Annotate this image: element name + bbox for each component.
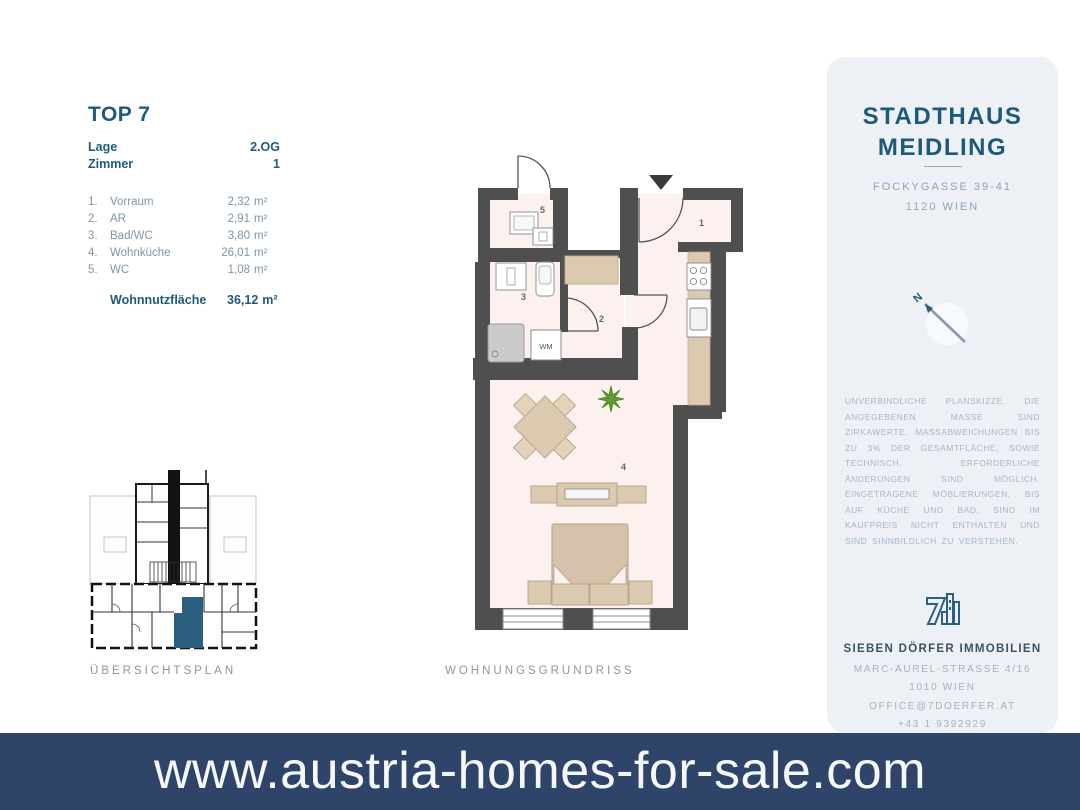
project-address-line2: 1120 WIEN <box>827 197 1058 217</box>
washing-machine-icon: WM <box>531 330 561 360</box>
stove-icon <box>687 263 711 290</box>
room-unit: m² <box>250 228 272 245</box>
room-name: AR <box>110 211 198 228</box>
shower-icon <box>488 324 524 362</box>
total-area: 36,12 <box>206 293 258 307</box>
room-row: 3. Bad/WC 3,80 m² <box>88 228 272 245</box>
room-row: 2. AR 2,91 m² <box>88 211 272 228</box>
overview-plan-caption: ÜBERSICHTSPLAN <box>90 665 236 677</box>
room-area: 26,01 <box>198 245 250 262</box>
room-row: 4. Wohnküche 26,01 m² <box>88 245 272 262</box>
title-divider <box>924 166 962 167</box>
company-address-line1: MARC-AUREL-STRASSE 4/16 <box>827 661 1058 679</box>
bath-toilet-icon <box>496 263 526 290</box>
room-area: 1,08 <box>198 262 250 279</box>
dining-set <box>513 393 576 459</box>
room-name: Vorraum <box>110 194 198 211</box>
room-list: 1. Vorraum 2,32 m² 2. AR 2,91 m² 3. Bad/… <box>88 194 280 279</box>
company-logo-icon <box>920 587 966 633</box>
room-unit: m² <box>250 245 272 262</box>
room-label-2: 2 <box>599 314 604 324</box>
kitchen-counter <box>687 252 711 405</box>
company-address: MARC-AUREL-STRASSE 4/16 1010 WIEN <box>827 661 1058 697</box>
room-num: 5. <box>88 262 110 279</box>
project-title-line1: STADTHAUS <box>827 101 1058 132</box>
room-num: 4. <box>88 245 110 262</box>
lage-label: Lage <box>88 139 117 156</box>
bath-sink-icon <box>536 262 554 296</box>
wm-label: WM <box>539 342 552 351</box>
total-row: Wohnnutzfläche 36,12 m² <box>88 293 280 307</box>
room-name: Bad/WC <box>110 228 198 245</box>
room-row: 5. WC 1,08 m² <box>88 262 272 279</box>
website-banner: www.austria-homes-for-sale.com <box>0 733 1080 810</box>
room-area: 2,32 <box>198 194 250 211</box>
zimmer-label: Zimmer <box>88 156 133 173</box>
apartment-floorplan: WM <box>440 140 780 700</box>
project-panel: STADTHAUS MEIDLING FOCKYGASSE 39-41 1120… <box>827 57 1058 733</box>
total-label: Wohnnutzfläche <box>110 293 206 307</box>
compass-icon: N <box>903 289 983 355</box>
entrance-arrow-icon <box>649 175 673 190</box>
website-url[interactable]: www.austria-homes-for-sale.com <box>0 733 1080 810</box>
room-name: Wohnküche <box>110 245 198 262</box>
page: TOP 7 Lage 2.OG Zimmer 1 1. Vorraum 2,32… <box>0 0 1080 810</box>
room-num: 3. <box>88 228 110 245</box>
company-name: SIEBEN DÖRFER IMMOBILIEN <box>827 643 1058 655</box>
room-row: 1. Vorraum 2,32 m² <box>88 194 272 211</box>
room-label-3: 3 <box>521 292 526 302</box>
room-name: WC <box>110 262 198 279</box>
unit-title: TOP 7 <box>88 103 280 127</box>
total-unit: m² <box>258 293 280 307</box>
company-address-line2: 1010 WIEN <box>827 679 1058 697</box>
lage-value: 2.OG <box>250 139 280 156</box>
room-unit: m² <box>250 211 272 228</box>
room-label-1: 1 <box>699 218 704 228</box>
unit-info-block: TOP 7 Lage 2.OG Zimmer 1 1. Vorraum 2,32… <box>88 103 280 307</box>
floorplan-caption: WOHNUNGSGRUNDRISS <box>445 665 635 677</box>
wc5-toilet-icon <box>533 228 553 245</box>
project-title: STADTHAUS MEIDLING <box>827 101 1058 163</box>
disclaimer-text: UNVERBINDLICHE PLANSKIZZE. DIE ANGEGEBEN… <box>845 394 1040 549</box>
project-address: FOCKYGASSE 39-41 1120 WIEN <box>827 177 1058 218</box>
room-label-4: 4 <box>621 462 626 472</box>
room-label-5: 5 <box>540 205 545 215</box>
wardrobe <box>565 256 618 284</box>
kitchen-sink-icon <box>687 299 711 337</box>
room-num: 2. <box>88 211 110 228</box>
company-contact: OFFICE@7DOERFER.AT +43 1 9392929 <box>827 698 1058 734</box>
project-title-line2: MEIDLING <box>827 132 1058 163</box>
overview-bottom-block <box>92 584 256 648</box>
company-phone: +43 1 9392929 <box>827 716 1058 734</box>
room-num: 1. <box>88 194 110 211</box>
overview-center-block <box>136 470 208 584</box>
room-unit: m² <box>250 262 272 279</box>
room-area: 3,80 <box>198 228 250 245</box>
project-address-line1: FOCKYGASSE 39-41 <box>827 177 1058 197</box>
compass-north-label: N <box>911 291 925 305</box>
zimmer-value: 1 <box>273 156 280 173</box>
room-area: 2,91 <box>198 211 250 228</box>
room-unit: m² <box>250 194 272 211</box>
company-email[interactable]: OFFICE@7DOERFER.AT <box>827 698 1058 716</box>
sideboard <box>531 483 646 506</box>
meta-row-zimmer: Zimmer 1 <box>88 156 280 173</box>
overview-plan <box>85 465 261 655</box>
meta-row-lage: Lage 2.OG <box>88 139 280 156</box>
